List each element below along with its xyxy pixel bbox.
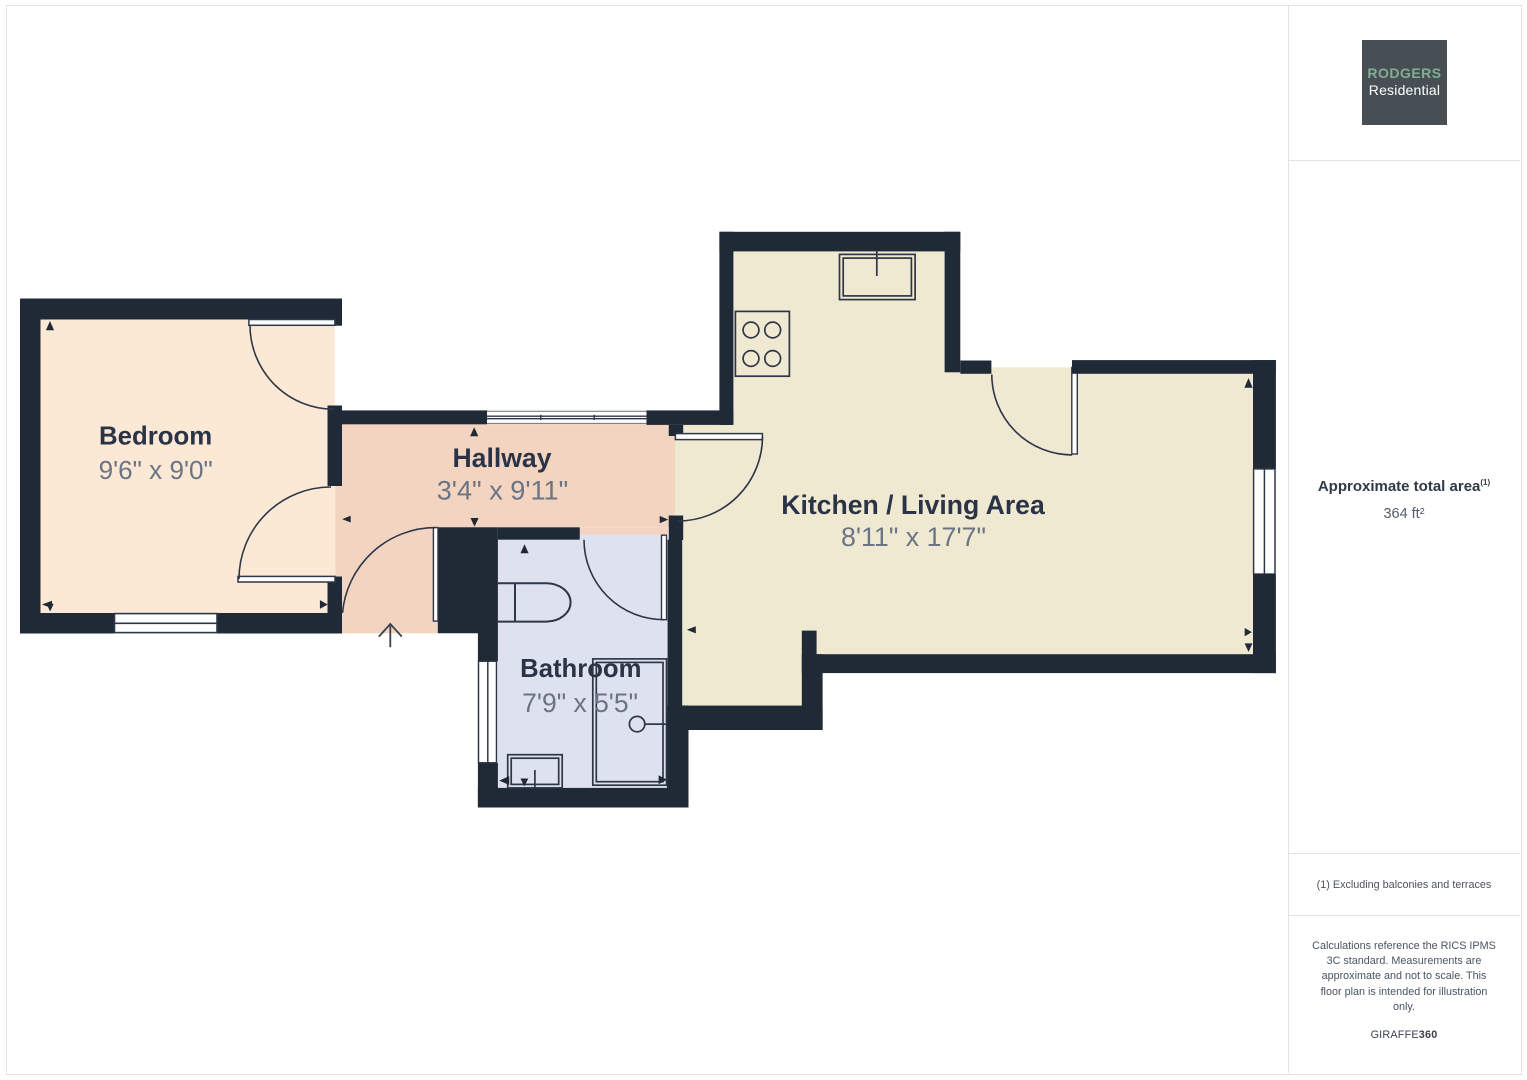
svg-text:Bedroom: Bedroom (99, 423, 212, 451)
svg-text:Bathroom: Bathroom (520, 655, 641, 683)
svg-text:9'6" x 9'0": 9'6" x 9'0" (99, 455, 213, 485)
svg-text:Hallway: Hallway (452, 443, 551, 473)
svg-text:3'4" x 9'11": 3'4" x 9'11" (437, 475, 569, 506)
svg-text:8'11" x 17'7": 8'11" x 17'7" (841, 522, 986, 552)
svg-text:Kitchen / Living Area: Kitchen / Living Area (781, 490, 1045, 520)
svg-text:7'9" x 5'5": 7'9" x 5'5" (522, 688, 638, 718)
